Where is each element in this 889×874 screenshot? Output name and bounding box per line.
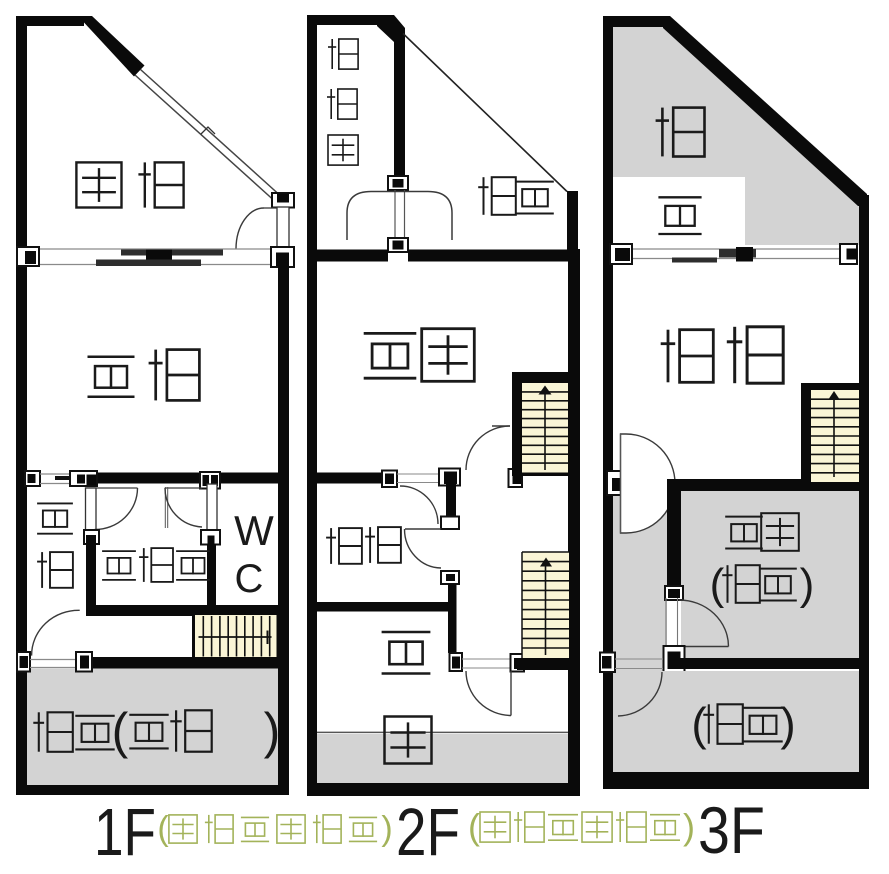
svg-text:(: (: [710, 560, 725, 609]
svg-text:2F: 2F: [396, 795, 460, 870]
svg-text:(: (: [468, 806, 480, 847]
svg-text:(: (: [112, 703, 129, 759]
svg-text:): ): [381, 810, 392, 848]
svg-text:1F: 1F: [94, 795, 156, 870]
svg-text:(: (: [157, 810, 169, 848]
svg-text:): ): [683, 806, 695, 847]
svg-text:W: W: [234, 507, 274, 554]
svg-text:3F: 3F: [698, 793, 765, 867]
svg-text:(: (: [691, 698, 707, 750]
svg-text:): ): [264, 703, 281, 759]
svg-text:): ): [800, 560, 815, 609]
svg-text:): ): [780, 698, 795, 750]
svg-text:C: C: [235, 557, 264, 601]
